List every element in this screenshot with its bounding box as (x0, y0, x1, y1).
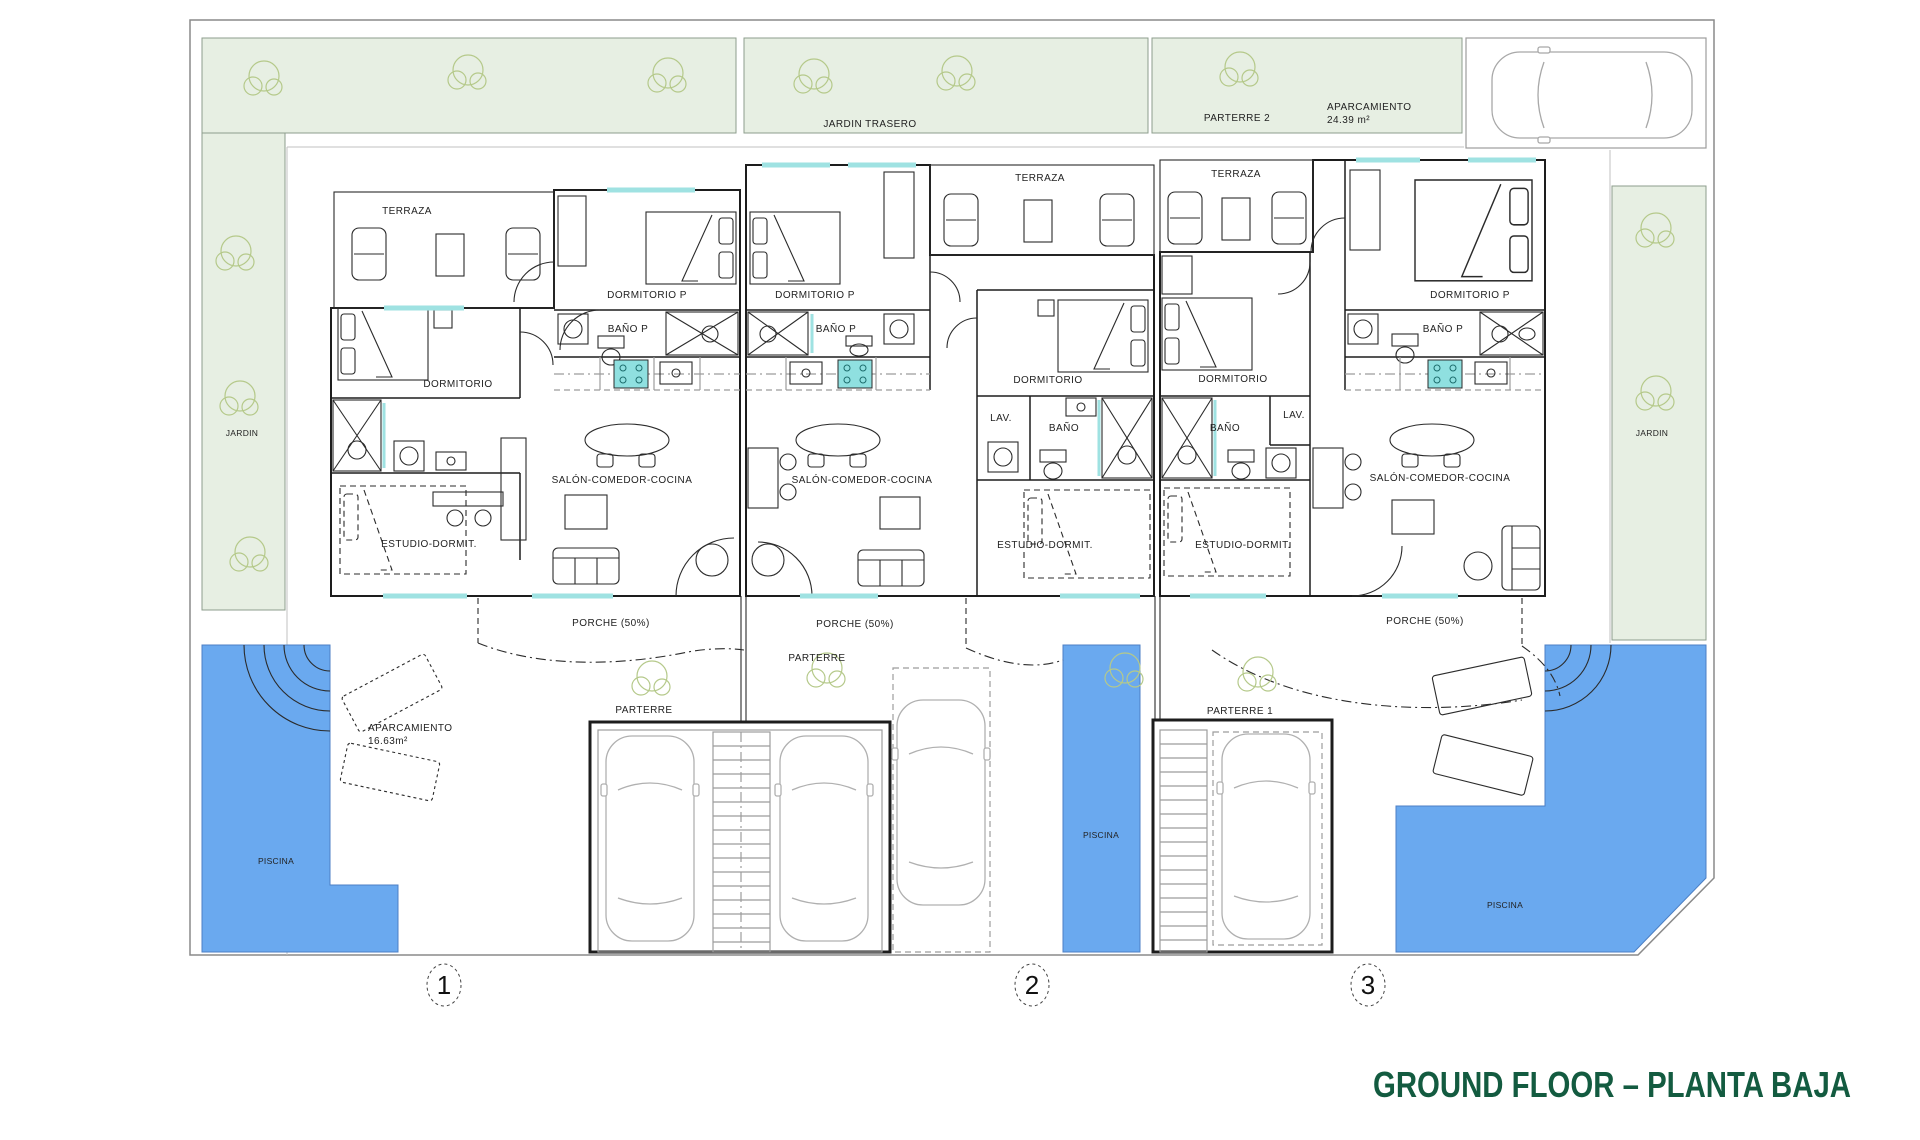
unit-3-marker: 3 (1351, 964, 1385, 1006)
garage-unit-3 (1153, 720, 1332, 952)
label-porche-unit-1: PORCHE (50%) (572, 618, 650, 629)
label-parking-front: APARCAMIENTO (368, 723, 453, 734)
label-u1-bano-p: BAÑO P (608, 322, 649, 335)
label-parking-top-area: 24.39 m² (1327, 115, 1370, 126)
label-piscina-center: PISCINA (1083, 830, 1119, 840)
label-jardin-right: JARDIN (1636, 428, 1669, 438)
label-parterre-center: PARTERRE (788, 653, 845, 664)
label-u2-bano-p: BAÑO P (816, 322, 857, 335)
label-u2-dormitorio-p: DORMITORIO P (775, 290, 855, 301)
label-parterre-left: PARTERRE (615, 705, 672, 716)
label-parking-top: APARCAMIENTO (1327, 102, 1412, 113)
garage-units-1-2 (590, 722, 890, 952)
label-parking-front-area: 16.63m² (368, 736, 408, 747)
page-title: GROUND FLOOR – PLANTA BAJA (1373, 1064, 1851, 1105)
label-u2-dormitorio: DORMITORIO (1013, 375, 1082, 386)
car-icon (601, 736, 699, 941)
label-parterre-2: PARTERRE 2 (1204, 113, 1270, 124)
car-icon (1492, 47, 1692, 143)
label-u2-estudio: ESTUDIO-DORMIT. (997, 540, 1093, 551)
label-u3-terraza: TERRAZA (1211, 169, 1261, 180)
label-u2-lav: LAV. (990, 413, 1012, 424)
label-u1-salon: SALÓN-COMEDOR-COCINA (552, 473, 693, 486)
label-u3-estudio: ESTUDIO-DORMIT. (1195, 540, 1291, 551)
label-u1-estudio: ESTUDIO-DORMIT. (381, 539, 477, 550)
label-jardin-trasero: JARDIN TRASERO (823, 119, 916, 130)
label-u3-lav: LAV. (1283, 410, 1305, 421)
label-u2-terraza: TERRAZA (1015, 173, 1065, 184)
label-porche-unit-2: PORCHE (50%) (816, 619, 894, 630)
hob-icon (838, 360, 872, 388)
label-u3-salon: SALÓN-COMEDOR-COCINA (1370, 471, 1511, 484)
label-u2-number: 2 (1025, 970, 1039, 1000)
label-piscina-right: PISCINA (1487, 900, 1523, 910)
garden-left: JARDIN (202, 133, 285, 610)
label-piscina-left: PISCINA (258, 856, 294, 866)
label-u3-bano-p: BAÑO P (1423, 322, 1464, 335)
hob-icon (1428, 360, 1462, 388)
pool-center: PISCINA (1063, 645, 1140, 952)
hob-icon (614, 360, 648, 388)
label-porche-unit-3: PORCHE (50%) (1386, 616, 1464, 627)
label-u3-dormitorio: DORMITORIO (1198, 374, 1267, 385)
unit-markers: 1 2 3 (427, 964, 1385, 1006)
floor-plan-page: JARDIN TRASERO PARTERRE 2 APARCAMIENTO 2… (0, 0, 1920, 1140)
label-u2-salon: SALÓN-COMEDOR-COCINA (792, 473, 933, 486)
label-u3-dormitorio-p: DORMITORIO P (1430, 290, 1510, 301)
label-u3-bano: BAÑO (1210, 421, 1240, 434)
car-icon (775, 736, 873, 941)
label-u2-bano: BAÑO (1049, 421, 1079, 434)
floor-plan-canvas: JARDIN TRASERO PARTERRE 2 APARCAMIENTO 2… (0, 0, 1920, 1140)
garden-right: JARDIN (1612, 186, 1706, 640)
label-u3-number: 3 (1361, 970, 1375, 1000)
label-u1-number: 1 (437, 970, 451, 1000)
label-jardin-left: JARDIN (226, 428, 259, 438)
label-u1-terraza: TERRAZA (382, 206, 432, 217)
label-u1-dormitorio: DORMITORIO (423, 379, 492, 390)
garden-top: JARDIN TRASERO PARTERRE 2 APARCAMIENTO 2… (202, 38, 1462, 133)
label-u1-dormitorio-p: DORMITORIO P (607, 290, 687, 301)
unit-1-marker: 1 (427, 964, 461, 1006)
car-icon (1217, 734, 1315, 939)
garden-top-right (1152, 38, 1462, 133)
unit-2-marker: 2 (1015, 964, 1049, 1006)
car-icon (892, 700, 990, 905)
label-parterre-1: PARTERRE 1 (1207, 706, 1273, 717)
